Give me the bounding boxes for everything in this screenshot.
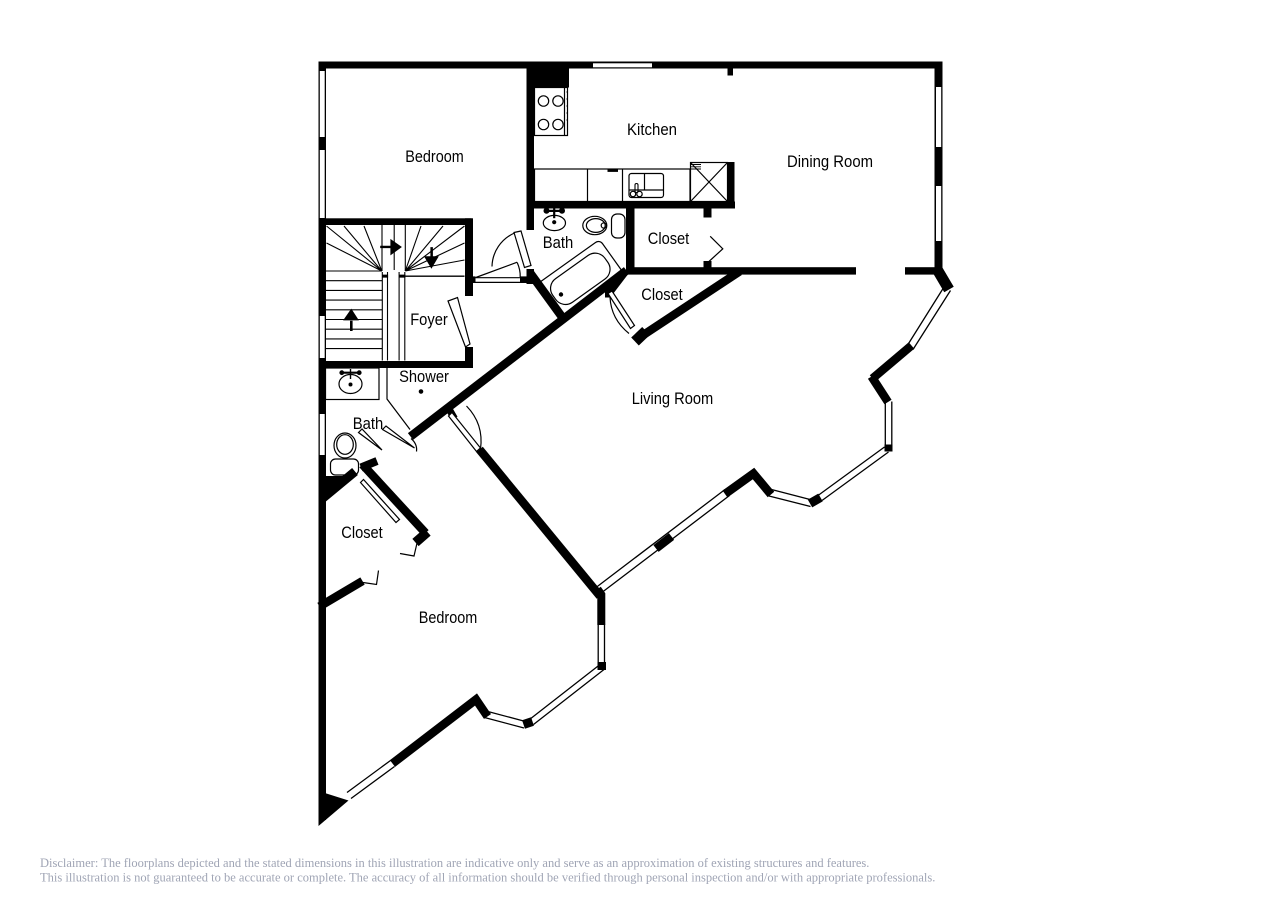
svg-text:Dining Room: Dining Room — [787, 152, 873, 171]
svg-text:Bath: Bath — [543, 233, 574, 252]
svg-text:This illustration is not guara: This illustration is not guaranteed to b… — [40, 871, 935, 885]
svg-text:Bedroom: Bedroom — [405, 147, 464, 166]
svg-text:Living Room: Living Room — [632, 389, 714, 408]
svg-text:Foyer: Foyer — [410, 310, 448, 329]
svg-text:Disclaimer: The floorplans dep: Disclaimer: The floorplans depicted and … — [40, 856, 869, 870]
svg-text:Closet: Closet — [341, 523, 383, 542]
svg-text:Bath: Bath — [353, 414, 384, 433]
svg-text:Closet: Closet — [648, 229, 690, 248]
svg-text:Shower: Shower — [399, 367, 449, 386]
svg-text:Bedroom: Bedroom — [419, 608, 478, 627]
svg-text:Kitchen: Kitchen — [627, 120, 677, 139]
svg-text:Closet: Closet — [641, 285, 683, 304]
